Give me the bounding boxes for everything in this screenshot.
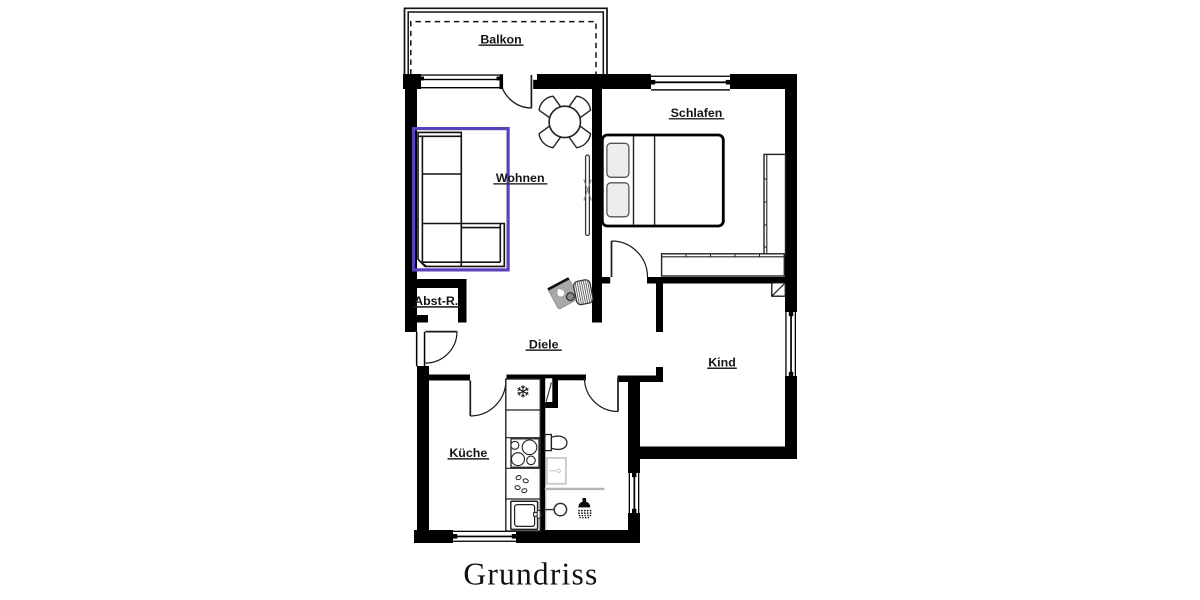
svg-text:Kind: Kind [708,355,736,369]
svg-text:Schlafen: Schlafen [671,106,723,120]
svg-text:Grundriss: Grundriss [463,557,598,592]
svg-text:Diele: Diele [529,337,559,351]
svg-text:Wohnen: Wohnen [496,171,545,185]
svg-text:Küche: Küche [449,446,487,460]
svg-text:Abst-R.: Abst-R. [414,294,458,308]
svg-text:Balkon: Balkon [480,32,521,46]
